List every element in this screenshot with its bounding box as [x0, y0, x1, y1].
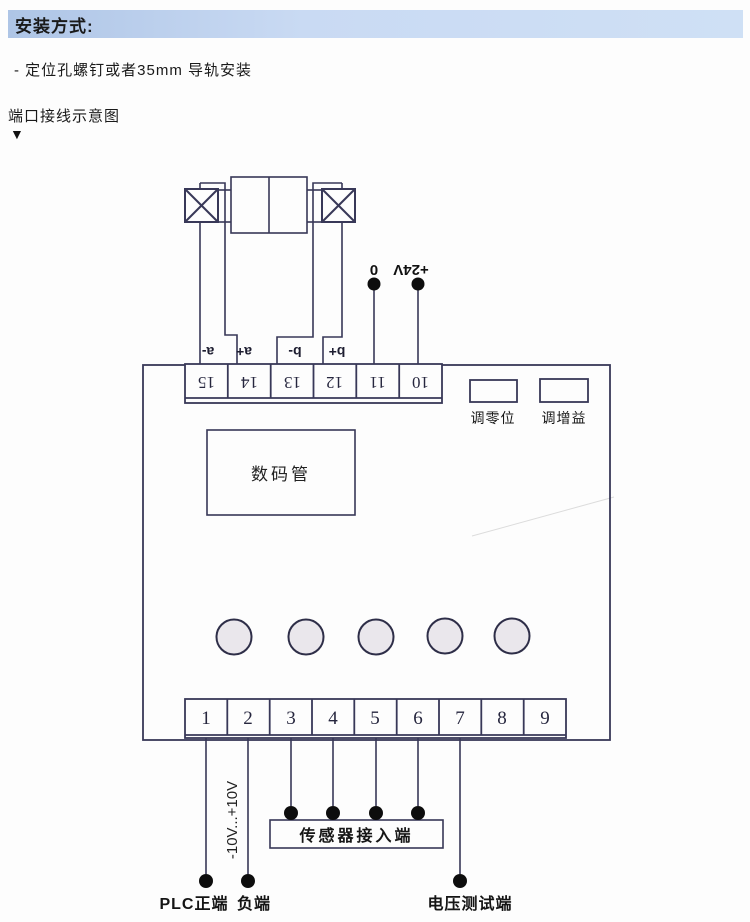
secondary-coil-left-icon — [185, 189, 218, 222]
dot-sensor-3 — [284, 806, 298, 820]
plc-positive-label: PLC正端 — [154, 890, 234, 914]
bottom-terminal-9: 9 — [524, 704, 566, 734]
panel-button-icon — [289, 620, 324, 655]
dot-24v — [412, 278, 425, 291]
top-terminal-10: 10 — [399, 368, 442, 396]
bottom-terminal-1: 1 — [185, 704, 227, 734]
dot-plc — [199, 874, 213, 888]
gain-pot — [540, 379, 588, 402]
top-terminal-12: 12 — [313, 368, 356, 396]
supply-24v-label: +24V — [386, 261, 436, 277]
dot-neg — [241, 874, 255, 888]
coil-label-a-plus: a+ — [229, 344, 259, 360]
dot-sensor-4 — [326, 806, 340, 820]
secondary-coil-right-icon — [322, 189, 355, 222]
bottom-terminal-3: 3 — [270, 704, 312, 734]
zero-pot — [470, 380, 517, 402]
wiring-schematic — [0, 0, 750, 922]
sensor-input-label: 传感器接入端 — [270, 820, 443, 848]
top-terminal-15: 15 — [185, 368, 228, 396]
negative-label: 负端 — [228, 890, 280, 914]
bottom-terminal-5: 5 — [354, 704, 396, 734]
coil-label-b-plus: b+ — [322, 344, 352, 360]
output-range-label: -10V...+10V — [225, 760, 241, 880]
scan-artifact-line — [472, 497, 614, 536]
bottom-terminal-2: 2 — [227, 704, 269, 734]
gain-pot-label: 调增益 — [529, 408, 599, 428]
panel-button-icon — [217, 620, 252, 655]
dot-sensor-5 — [369, 806, 383, 820]
button-row — [217, 619, 530, 655]
primary-coil-icon — [231, 177, 307, 233]
coil-label-a-minus: a- — [193, 344, 223, 360]
panel-button-icon — [495, 619, 530, 654]
coil-label-b-minus: b- — [280, 344, 310, 360]
dot-0v — [368, 278, 381, 291]
voltage-test-label: 电压测试端 — [420, 890, 520, 914]
dot-volt-test — [453, 874, 467, 888]
dot-sensor-6 — [411, 806, 425, 820]
supply-0-label: 0 — [366, 261, 382, 277]
bottom-terminal-6: 6 — [397, 704, 439, 734]
display-label: 数码管 — [207, 430, 355, 515]
top-terminal-11: 11 — [356, 368, 399, 396]
bottom-terminal-8: 8 — [481, 704, 523, 734]
manual-page: 安装方式: - 定位孔螺钉或者35mm 导轨安装 端口接线示意图 ▼ — [0, 0, 750, 922]
bottom-terminal-7: 7 — [439, 704, 481, 734]
panel-button-icon — [428, 619, 463, 654]
top-terminal-13: 13 — [271, 368, 314, 396]
panel-button-icon — [359, 620, 394, 655]
bottom-terminal-4: 4 — [312, 704, 354, 734]
top-terminal-14: 14 — [228, 368, 271, 396]
zero-pot-label: 调零位 — [458, 408, 528, 428]
